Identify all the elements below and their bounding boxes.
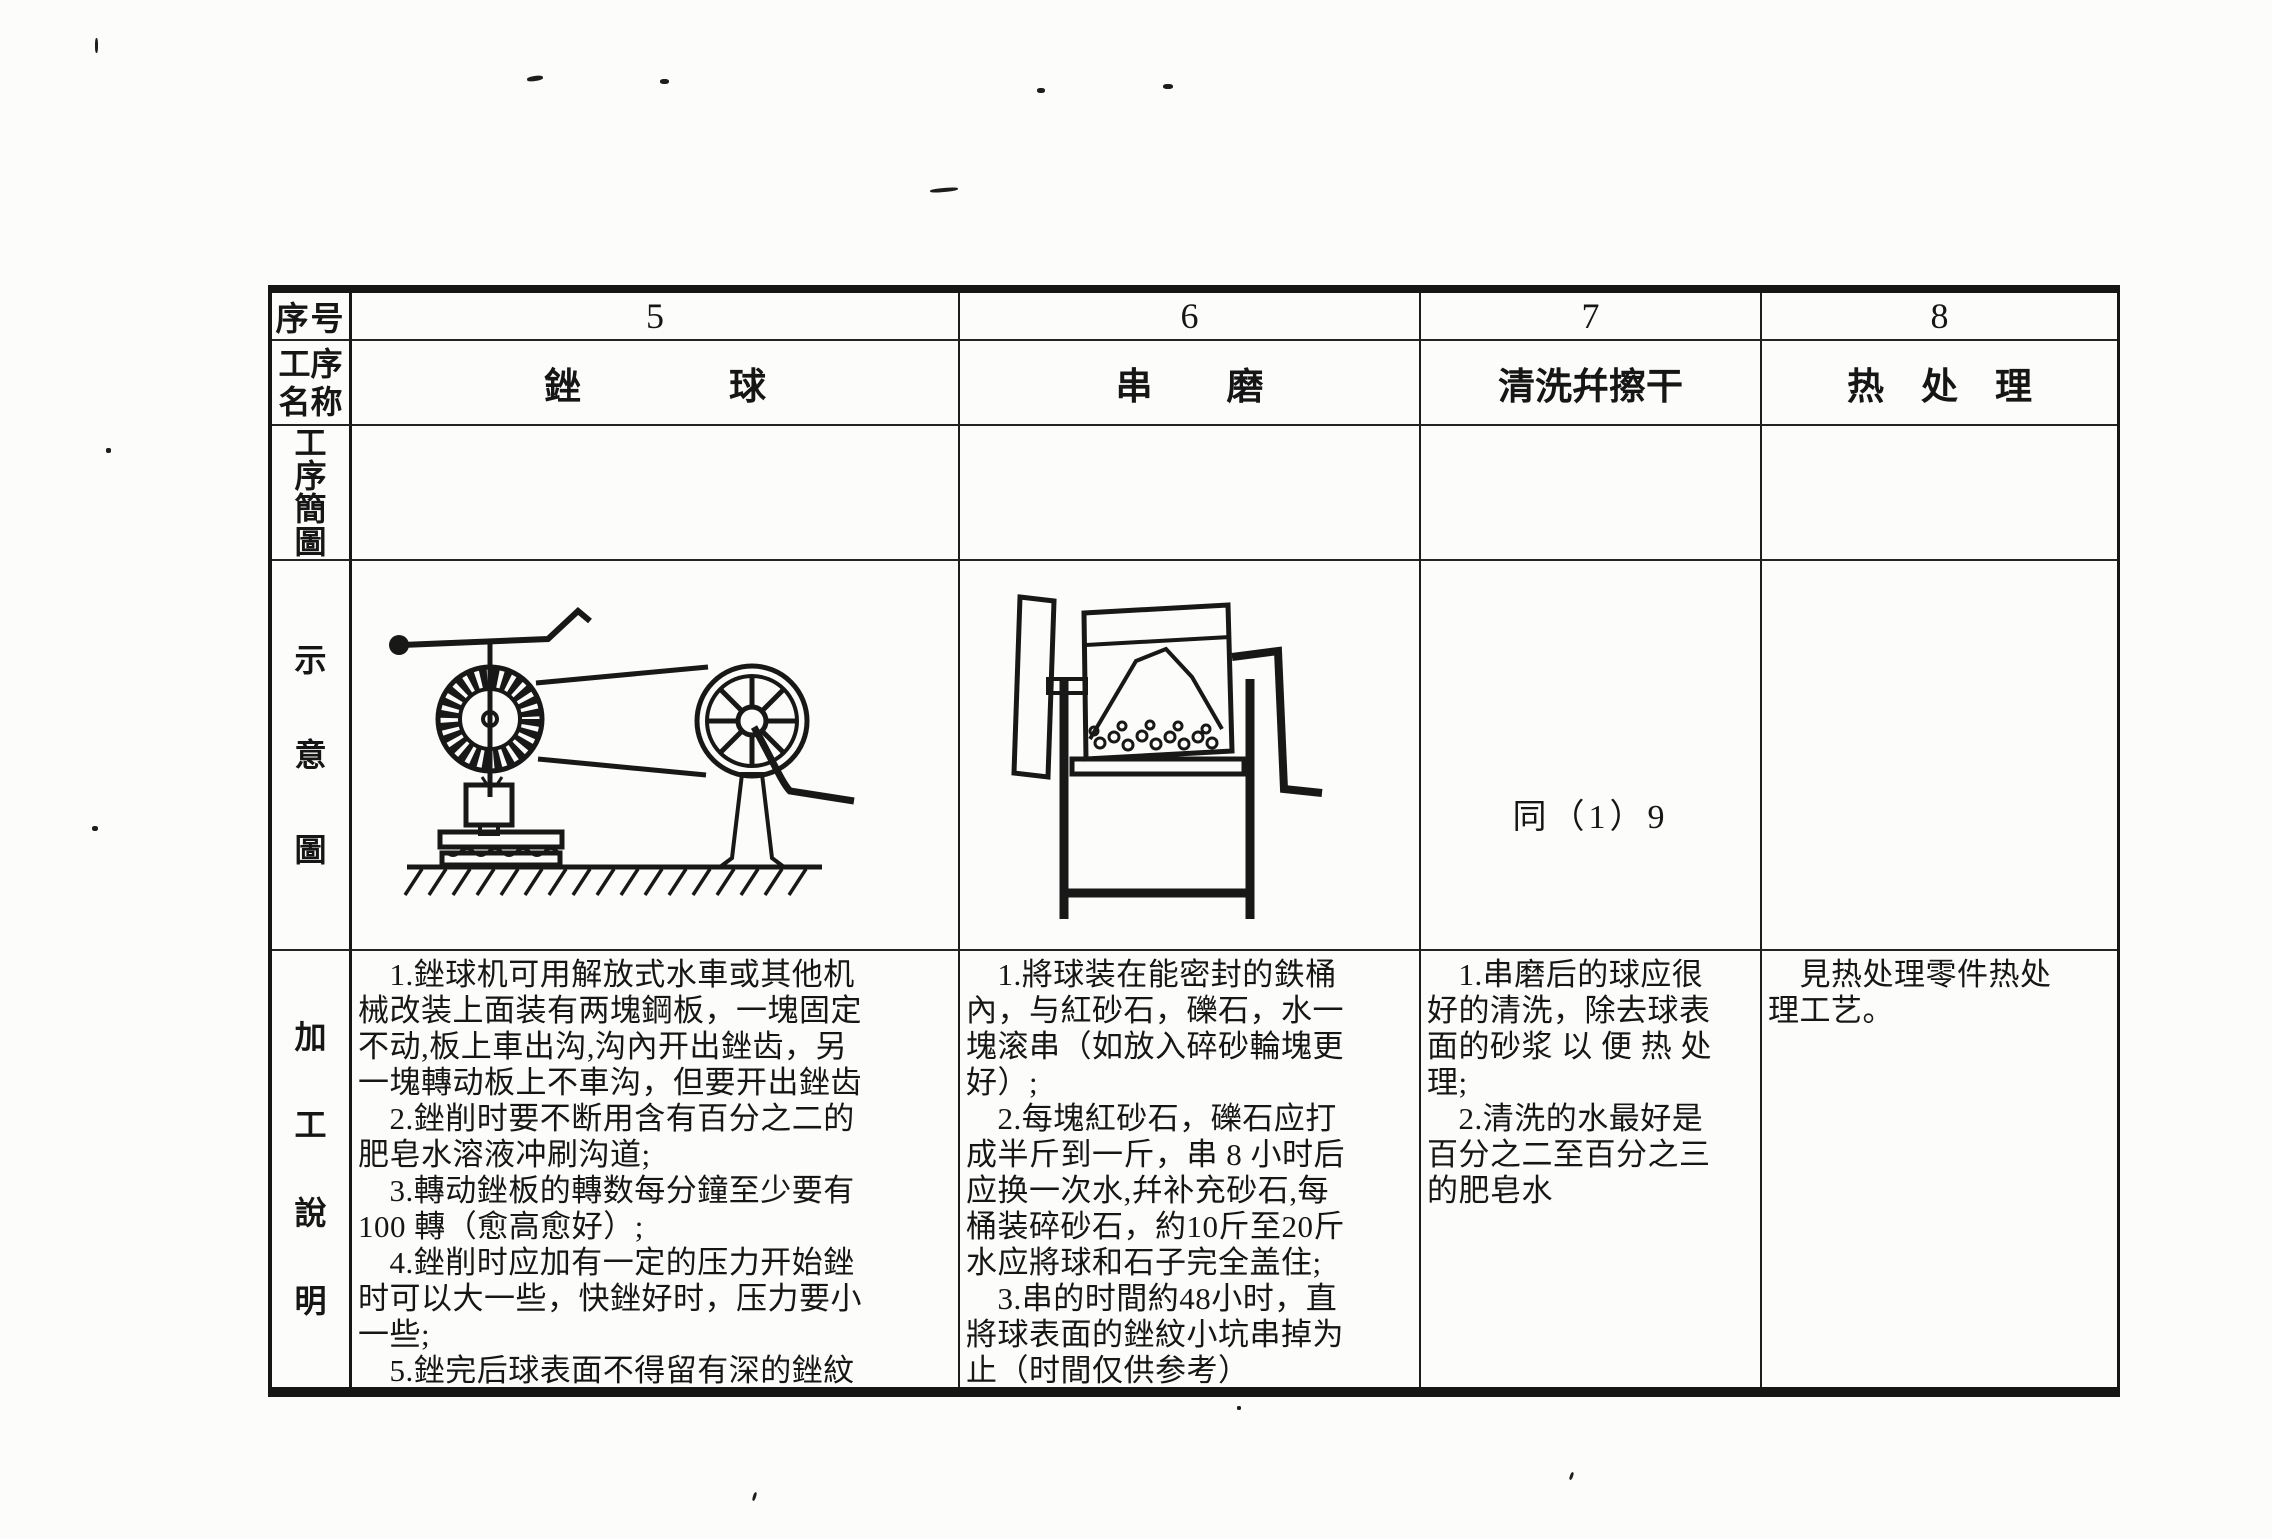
text-line: 好的清洗，除去球表 <box>1427 993 1754 1029</box>
row-label-diagram-text: 示意圖 <box>293 613 329 898</box>
diagram-cell-col6 <box>960 561 1421 951</box>
scan-speck <box>1037 88 1045 93</box>
text-line: 的肥皂水 <box>1427 1173 1754 1209</box>
seq-number-col6: 6 <box>960 293 1421 341</box>
text-line: 不动,板上車出沟,沟內开出銼齿，另 <box>358 1029 952 1065</box>
scan-speck <box>106 448 111 453</box>
sketch-cell-col7 <box>1421 426 1762 561</box>
text-line: 100 轉（愈高愈好）; <box>358 1209 952 1245</box>
scan-speck <box>1569 1472 1575 1481</box>
text-line: 4.銼削时应加有一定的压力开始銼 <box>358 1245 952 1281</box>
row-label-sketch-text: 工序簡圖 <box>293 427 329 559</box>
press-stack <box>440 785 562 865</box>
text-line: 5.銼完后球表面不得留有深的銼紋 <box>358 1353 952 1387</box>
text-line: 3.串的时間約48小时，直 <box>966 1281 1413 1317</box>
text-line: 見热处理零件热处 <box>1768 957 2111 993</box>
process-name-col6: 串 磨 <box>960 341 1421 426</box>
scan-speck <box>527 75 544 82</box>
ground-hatching <box>405 869 806 895</box>
diagram-cell-col7: 同（1）9 <box>1421 561 1762 951</box>
seq-number-col7: 7 <box>1421 293 1762 341</box>
text-line: 理工艺。 <box>1768 993 2111 1029</box>
text-line: 2.銼削时要不断用含有百分之二的 <box>358 1101 952 1137</box>
sketch-cell-col5 <box>352 426 960 561</box>
notes-cell-col5: 1.銼球机可用解放式水車或其他机械改装上面装有两塊鋼板，一塊固定不动,板上車出沟… <box>352 951 960 1387</box>
text-line: 2.清洗的水最好是 <box>1427 1101 1754 1137</box>
text-line: 桶装碎砂石，約10斤至20斤 <box>966 1209 1413 1245</box>
drum-box <box>1084 605 1232 759</box>
gravel-stones <box>1090 721 1217 750</box>
text-line: 水应將球和石子完全盖住; <box>966 1245 1413 1281</box>
text-line: 面的砂浆 以 便 热 处 <box>1427 1029 1754 1065</box>
drum-shelf <box>1072 759 1244 774</box>
tumbling-drum-diagram <box>960 561 1419 949</box>
ball-filing-machine-diagram <box>352 561 958 949</box>
text-line: 时可以大一些，快銼好时，压力要小 <box>358 1281 952 1317</box>
sketch-cell-col8 <box>1762 426 2117 561</box>
text-line: 应换一次水,幷补充砂石,每 <box>966 1173 1413 1209</box>
pedestal-stand <box>720 774 784 867</box>
scan-speck <box>1237 1406 1241 1410</box>
text-line: 1.銼球机可用解放式水車或其他机 <box>358 957 952 993</box>
row-label-process-name-text: 工序名称 <box>277 345 345 421</box>
text-line: 塊滚串（如放入碎砂輪塊更 <box>966 1029 1413 1065</box>
process-table: 序号 5 6 7 8 工序名称 銼 球 串 磨 清洗幷擦干 热 处 理 工序簡圖… <box>268 285 2120 1397</box>
seq-number-col8: 8 <box>1762 293 2117 341</box>
scan-speck <box>92 826 98 831</box>
text-line: 1.將球装在能密封的鉄桶 <box>966 957 1413 993</box>
notes-cell-col6: 1.將球装在能密封的鉄桶內，与紅砂石，礫石，水一塊滚串（如放入碎砂輪塊更好）; … <box>960 951 1421 1387</box>
text-line: 1.串磨后的球应很 <box>1427 957 1754 993</box>
row-label-sketch: 工序簡圖 <box>272 426 352 561</box>
text-line: 百分之二至百分之三 <box>1427 1137 1754 1173</box>
pulley-wheel <box>697 666 807 776</box>
text-line: 理; <box>1427 1065 1754 1101</box>
scan-speck <box>95 38 98 53</box>
seq-number-col5: 5 <box>352 293 960 341</box>
scanned-document-page: 序号 5 6 7 8 工序名称 銼 球 串 磨 清洗幷擦干 热 处 理 工序簡圖… <box>0 0 2272 1538</box>
sketch-cell-col6 <box>960 426 1421 561</box>
text-line: 止（时間仅供参考） <box>966 1353 1413 1387</box>
text-line: 3.轉动銼板的轉数每分鐘至少要有 <box>358 1173 952 1209</box>
row-label-seq: 序号 <box>272 293 352 341</box>
diagram-cell-col8 <box>1762 561 2117 951</box>
stand-frame <box>1060 679 1254 919</box>
scan-speck <box>930 187 958 193</box>
row-label-notes: 加工說明 <box>272 951 352 1387</box>
belt-top <box>536 667 708 683</box>
scan-speck <box>752 1492 758 1501</box>
scan-speck <box>1163 84 1173 89</box>
row-label-process-name: 工序名称 <box>272 341 352 426</box>
text-line: 內，与紅砂石，礫石，水一 <box>966 993 1413 1029</box>
crank-ball-end <box>389 635 409 655</box>
text-line: 械改装上面装有两塊鋼板，一塊固定 <box>358 993 952 1029</box>
process-name-col8: 热 处 理 <box>1762 341 2117 426</box>
process-name-col5: 銼 球 <box>352 341 960 426</box>
row-label-diagram: 示意圖 <box>272 561 352 951</box>
process-name-col7: 清洗幷擦干 <box>1421 341 1762 426</box>
text-line: 2.每塊紅砂石，礫石应打 <box>966 1101 1413 1137</box>
row-label-notes-text: 加工說明 <box>293 993 329 1345</box>
text-line: 成半斤到一斤，串 8 小时后 <box>966 1137 1413 1173</box>
text-line: 一些; <box>358 1317 952 1353</box>
text-line: 將球表面的銼紋小坑串掉为 <box>966 1317 1413 1353</box>
notes-cell-col7: 1.串磨后的球应很好的清洗，除去球表面的砂浆 以 便 热 处理; 2.清洗的水最… <box>1421 951 1762 1387</box>
diagram-cell-col5 <box>352 561 960 951</box>
text-line: 肥皂水溶液冲刷沟道; <box>358 1137 952 1173</box>
top-crank-bar <box>402 611 590 645</box>
text-line: 一塊轉动板上不車沟，但要开出銼齿 <box>358 1065 952 1101</box>
text-line: 好）; <box>966 1065 1413 1101</box>
belt-bottom <box>538 759 706 775</box>
scan-speck <box>660 79 669 84</box>
notes-cell-col8: 見热处理零件热处理工艺。 <box>1762 951 2117 1387</box>
